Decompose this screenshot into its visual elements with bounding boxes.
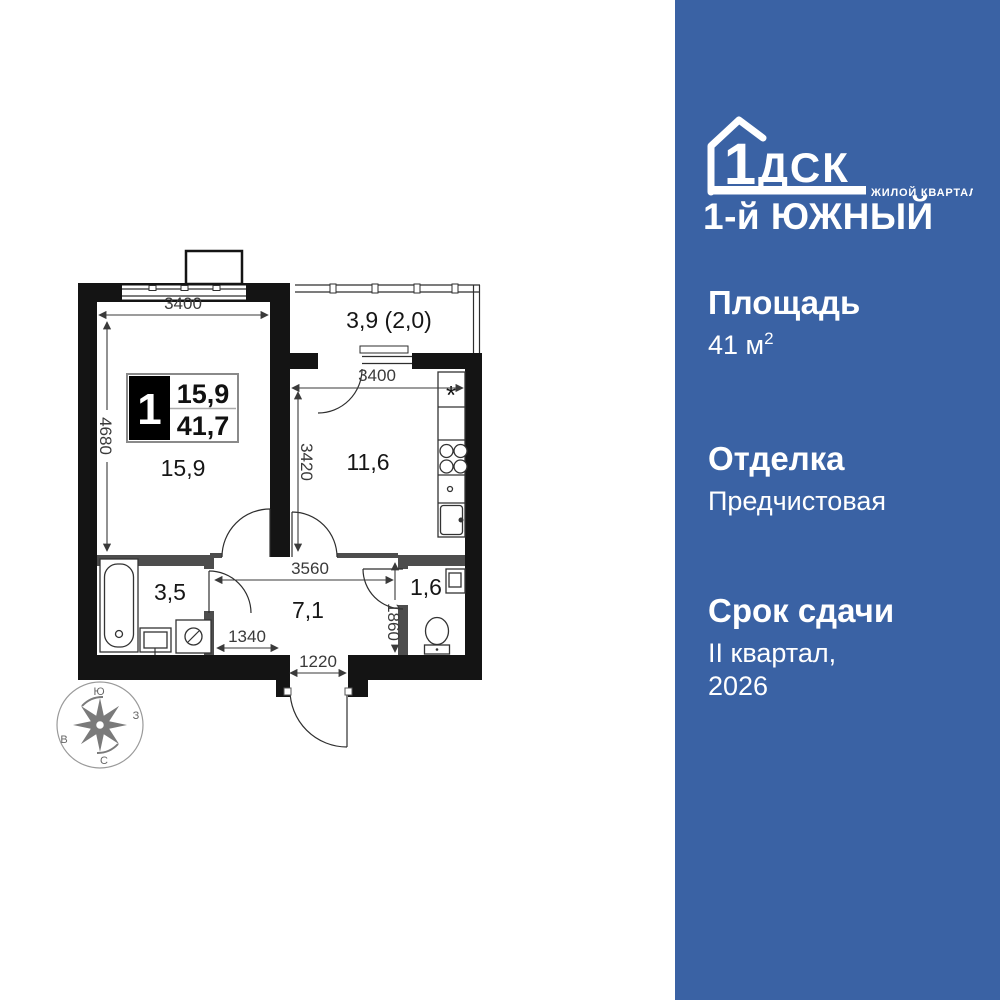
deadline-year: 2026 bbox=[708, 670, 894, 703]
badge-total-area: 41,7 bbox=[177, 411, 230, 441]
kitchen-sink-icon bbox=[441, 506, 464, 535]
room-label-balcony: 3,9 (2,0) bbox=[346, 307, 432, 333]
floor-plan: * 3400 bbox=[0, 0, 675, 1000]
brand-logo: 1 ДСК ЖИЛОЙ КВАРТАЛ bbox=[701, 110, 973, 206]
area-badge: 1 15,9 41,7 bbox=[127, 374, 238, 442]
finishing-value: Предчистовая bbox=[708, 485, 886, 518]
section-area: Площадь 41 м2 bbox=[708, 286, 860, 362]
dim-hallway-width: 3560 bbox=[291, 559, 329, 578]
room-label-hallway: 7,1 bbox=[292, 597, 324, 623]
logo-number: 1 bbox=[724, 132, 756, 197]
dim-living-width: 3400 bbox=[164, 294, 202, 313]
area-label: Площадь bbox=[708, 286, 860, 321]
compass-west-label: З bbox=[133, 710, 140, 722]
washing-machine-icon bbox=[176, 620, 211, 653]
dim-kitchen-width: 3400 bbox=[358, 366, 396, 385]
apartment-card: * 3400 bbox=[0, 0, 1000, 1000]
compass-south-label: Ю bbox=[93, 686, 104, 698]
logo-brand: ДСК bbox=[758, 144, 850, 191]
finishing-label: Отделка bbox=[708, 442, 886, 477]
info-sidebar: 1 ДСК ЖИЛОЙ КВАРТАЛ 1-й ЮЖНЫЙ Площадь 41… bbox=[675, 0, 1000, 1000]
dim-wc-height: 1860 bbox=[384, 603, 403, 641]
wc-sink-icon bbox=[446, 569, 465, 593]
deadline-quarter: II квартал, bbox=[708, 637, 894, 670]
bath-sink-icon bbox=[140, 628, 171, 655]
room-label-bathroom: 3,5 bbox=[154, 579, 186, 605]
badge-living-area: 15,9 bbox=[177, 379, 230, 409]
room-label-living: 15,9 bbox=[161, 455, 206, 481]
bathtub-icon bbox=[100, 559, 138, 652]
dim-bath-width: 1340 bbox=[228, 627, 266, 646]
dim-entrance-width: 1220 bbox=[299, 652, 337, 671]
section-finishing: Отделка Предчистовая bbox=[708, 442, 886, 518]
dim-living-height: 4680 bbox=[96, 417, 115, 455]
toilet-icon bbox=[425, 618, 450, 655]
area-value: 41 м2 bbox=[708, 329, 860, 362]
compass-icon: Ю З В С bbox=[57, 682, 143, 768]
badge-room-count: 1 bbox=[137, 385, 161, 434]
vent-shaft bbox=[186, 251, 242, 284]
compass-east-label: В bbox=[60, 734, 67, 746]
knob-icon bbox=[448, 487, 453, 492]
room-label-wc: 1,6 bbox=[410, 574, 442, 600]
deadline-label: Срок сдачи bbox=[708, 594, 894, 629]
fridge-symbol: * bbox=[446, 380, 456, 410]
dim-kitchen-height: 3420 bbox=[297, 443, 316, 481]
project-name: 1-й ЮЖНЫЙ bbox=[703, 196, 934, 238]
section-deadline: Срок сдачи II квартал, 2026 bbox=[708, 594, 894, 703]
room-label-kitchen: 11,6 bbox=[346, 449, 389, 475]
kitchen-counter: * bbox=[438, 372, 467, 537]
compass-north-label: С bbox=[100, 755, 108, 767]
